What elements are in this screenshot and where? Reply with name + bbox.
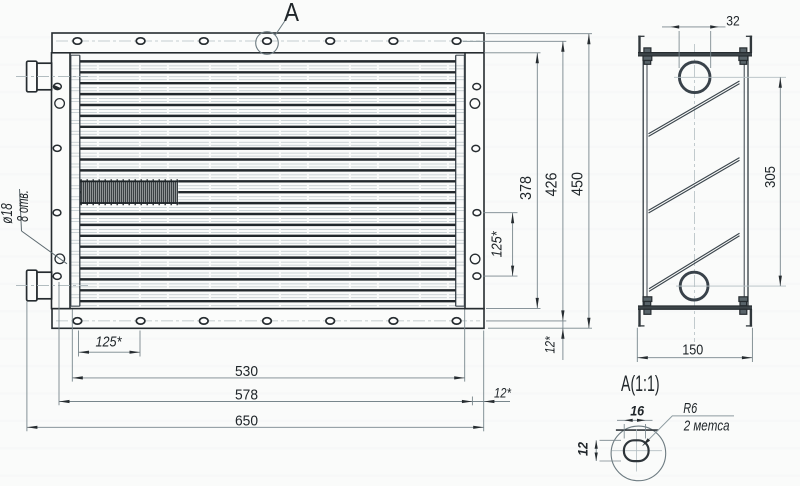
svg-text:16: 16 (630, 403, 644, 419)
svg-text:150: 150 (682, 342, 703, 359)
svg-text:12*: 12* (494, 385, 511, 401)
svg-text:450: 450 (570, 172, 587, 196)
svg-text:А(1:1): А(1:1) (621, 371, 660, 396)
svg-text:ø18: ø18 (0, 203, 16, 224)
svg-text:305: 305 (762, 166, 779, 188)
svg-text:650: 650 (235, 413, 258, 430)
svg-text:125*: 125* (489, 230, 506, 257)
svg-text:12*: 12* (542, 336, 558, 353)
svg-text:578: 578 (235, 387, 258, 404)
svg-text:530: 530 (235, 363, 258, 380)
svg-text:32: 32 (726, 12, 740, 28)
svg-text:8 отв.: 8 отв. (15, 190, 32, 222)
svg-text:A: A (284, 0, 300, 27)
svg-text:2 меmса: 2 меmса (683, 418, 730, 435)
svg-text:378: 378 (518, 176, 535, 200)
svg-text:426: 426 (544, 172, 561, 196)
svg-text:R6: R6 (683, 400, 697, 417)
svg-text:125*: 125* (96, 334, 123, 351)
svg-text:12: 12 (575, 442, 591, 456)
